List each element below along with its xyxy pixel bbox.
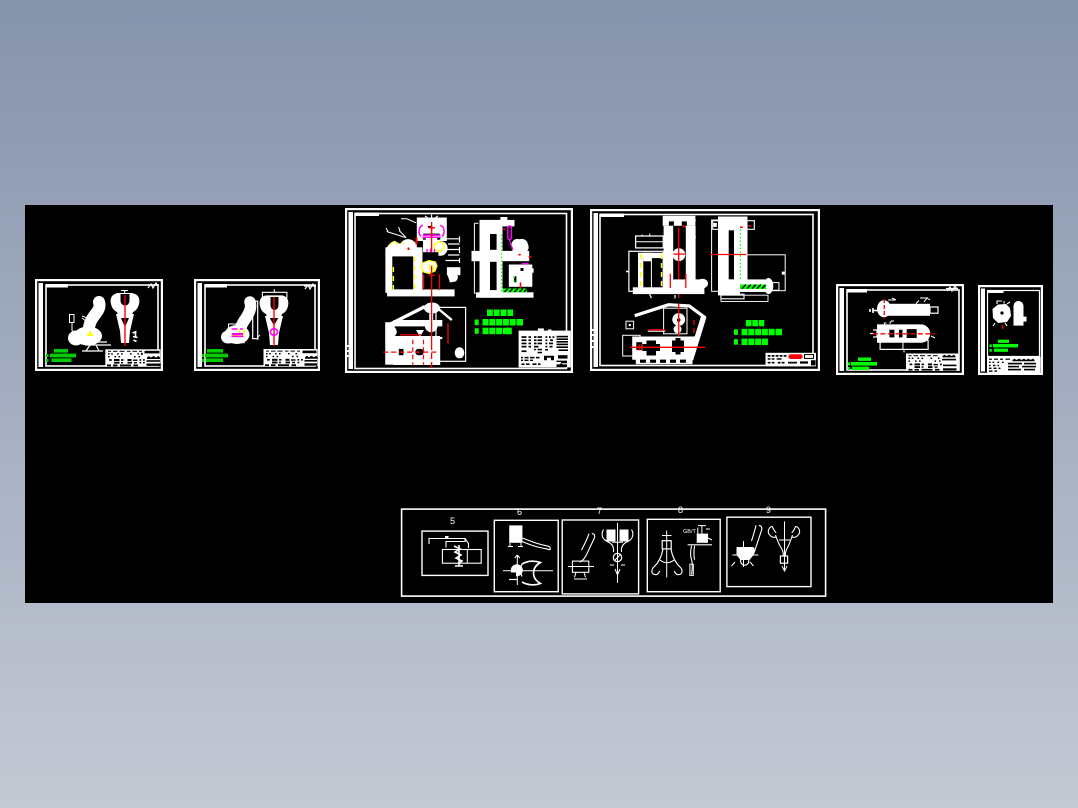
svg-text:5: 5: [450, 516, 455, 526]
svg-text:8: 8: [678, 505, 683, 515]
svg-text:GB/T: GB/T: [683, 529, 696, 535]
svg-text:6: 6: [517, 507, 522, 517]
svg-text:9: 9: [766, 505, 771, 515]
svg-text:7: 7: [597, 506, 602, 516]
